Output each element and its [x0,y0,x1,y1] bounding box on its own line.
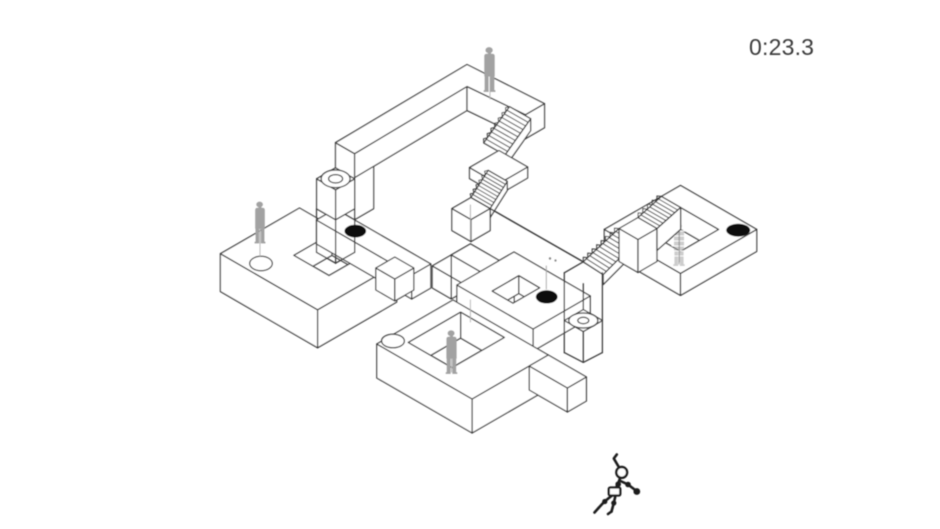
svg-text:0:23.3: 0:23.3 [749,34,814,60]
